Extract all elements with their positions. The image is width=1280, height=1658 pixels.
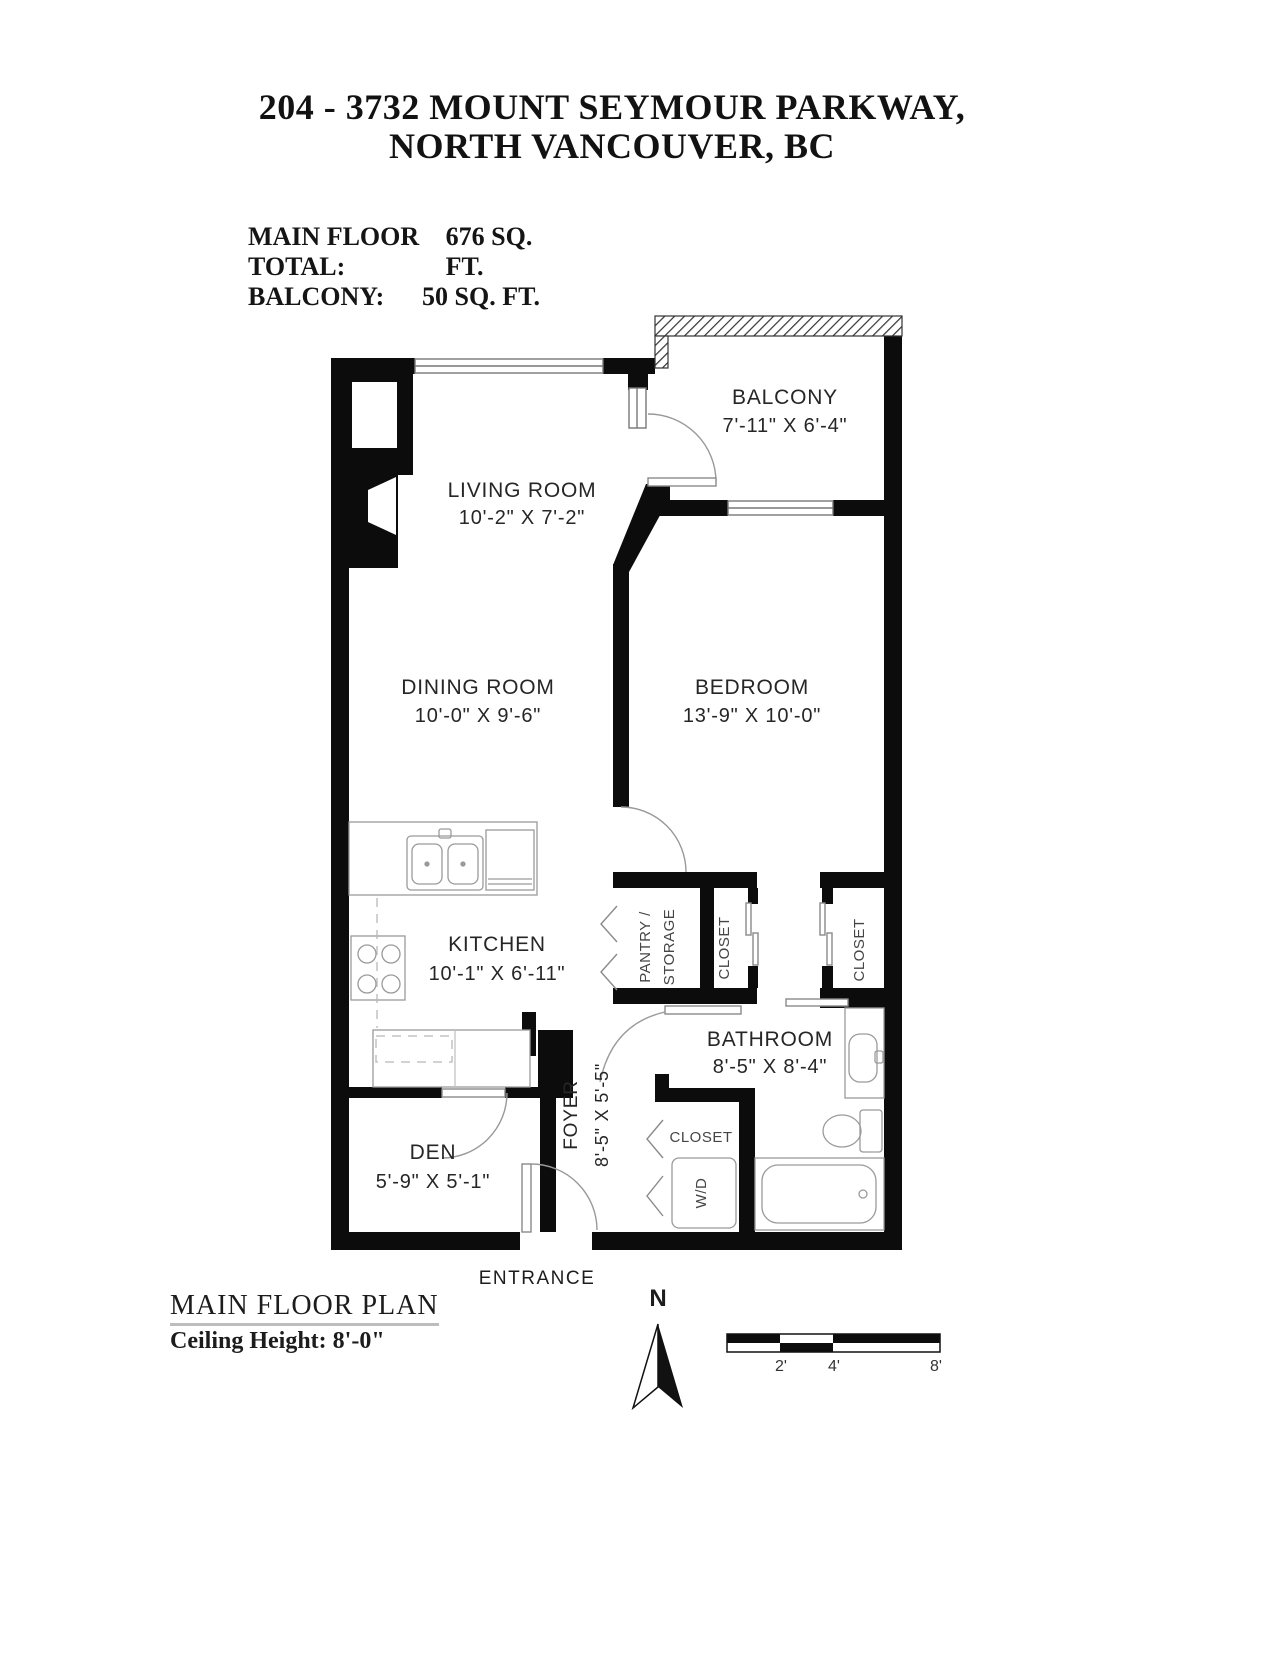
living-room-window — [415, 359, 603, 373]
foyer-closet-bifold-door — [647, 1120, 663, 1216]
bathroom-label: BATHROOM — [707, 1028, 833, 1051]
balcony-label: BALCONY — [732, 386, 838, 409]
scale-bar: 2' 4' 8' — [727, 1334, 942, 1375]
plan-title: MAIN FLOOR PLAN — [170, 1290, 439, 1326]
washer-dryer-label: W/D — [693, 1178, 710, 1209]
foyer-closet-label: CLOSET — [669, 1129, 732, 1146]
pantry-label-line2: STORAGE — [661, 909, 678, 986]
pantry-label-line1: PANTRY / — [637, 911, 654, 983]
dining-room-dims: 10'-0" X 9'-6" — [415, 705, 541, 727]
vanity-sink-icon — [845, 1008, 884, 1098]
balcony-hatched-wall — [655, 316, 902, 368]
den-label: DEN — [410, 1141, 457, 1164]
foyer-dims: 8'-5" X 5'-5" — [592, 1063, 612, 1167]
kitchen-label: KITCHEN — [448, 933, 546, 956]
balcony-dims: 7'-11" X 6'-4" — [723, 415, 848, 437]
plan-footer: MAIN FLOOR PLAN Ceiling Height: 8'-0" — [170, 1290, 439, 1355]
floor-plan-page: 204 - 3732 MOUNT SEYMOUR PARKWAY, NORTH … — [0, 0, 1280, 1658]
scale-tick-2ft: 2' — [775, 1358, 787, 1375]
foyer-label: FOYER — [561, 1080, 582, 1149]
stove-icon — [351, 936, 405, 1000]
bedroom-label: BEDROOM — [695, 676, 809, 699]
bedroom-door — [621, 807, 686, 872]
living-room-label: LIVING ROOM — [448, 479, 597, 502]
balcony-door — [648, 414, 716, 486]
kitchen-dims: 10'-1" X 6'-11" — [429, 963, 566, 985]
hall-door-leaf — [786, 999, 848, 1006]
closet-sliding-doors — [746, 903, 832, 965]
entrance-label: ENTRANCE — [479, 1268, 596, 1289]
living-room-dims: 10'-2" X 7'-2" — [459, 507, 585, 529]
ceiling-height: Ceiling Height: 8'-0" — [170, 1328, 439, 1355]
toilet-icon — [823, 1110, 882, 1152]
bathroom-dims: 8'-5" X 8'-4" — [713, 1056, 828, 1078]
north-arrow-icon: N — [633, 1285, 683, 1408]
balcony-side-window — [629, 388, 646, 428]
floor-plan-drawing: BALCONY 7'-11" X 6'-4" LIVING ROOM 10'-2… — [0, 0, 1280, 1658]
bathtub-icon — [755, 1158, 884, 1230]
scale-tick-4ft: 4' — [828, 1358, 840, 1375]
entrance-door — [522, 1164, 597, 1232]
bedroom-window — [728, 501, 833, 515]
bedroom-dims: 13'-9" X 10'-0" — [683, 705, 821, 727]
scale-tick-8ft: 8' — [930, 1358, 942, 1375]
den-dims: 5'-9" X 5'-1" — [376, 1171, 491, 1193]
dining-room-label: DINING ROOM — [401, 676, 554, 699]
bedroom-closet-right-label: CLOSET — [851, 918, 868, 981]
north-label: N — [649, 1285, 666, 1312]
pantry-bifold-door — [601, 906, 617, 990]
bedroom-closet-left-label: CLOSET — [716, 916, 733, 979]
